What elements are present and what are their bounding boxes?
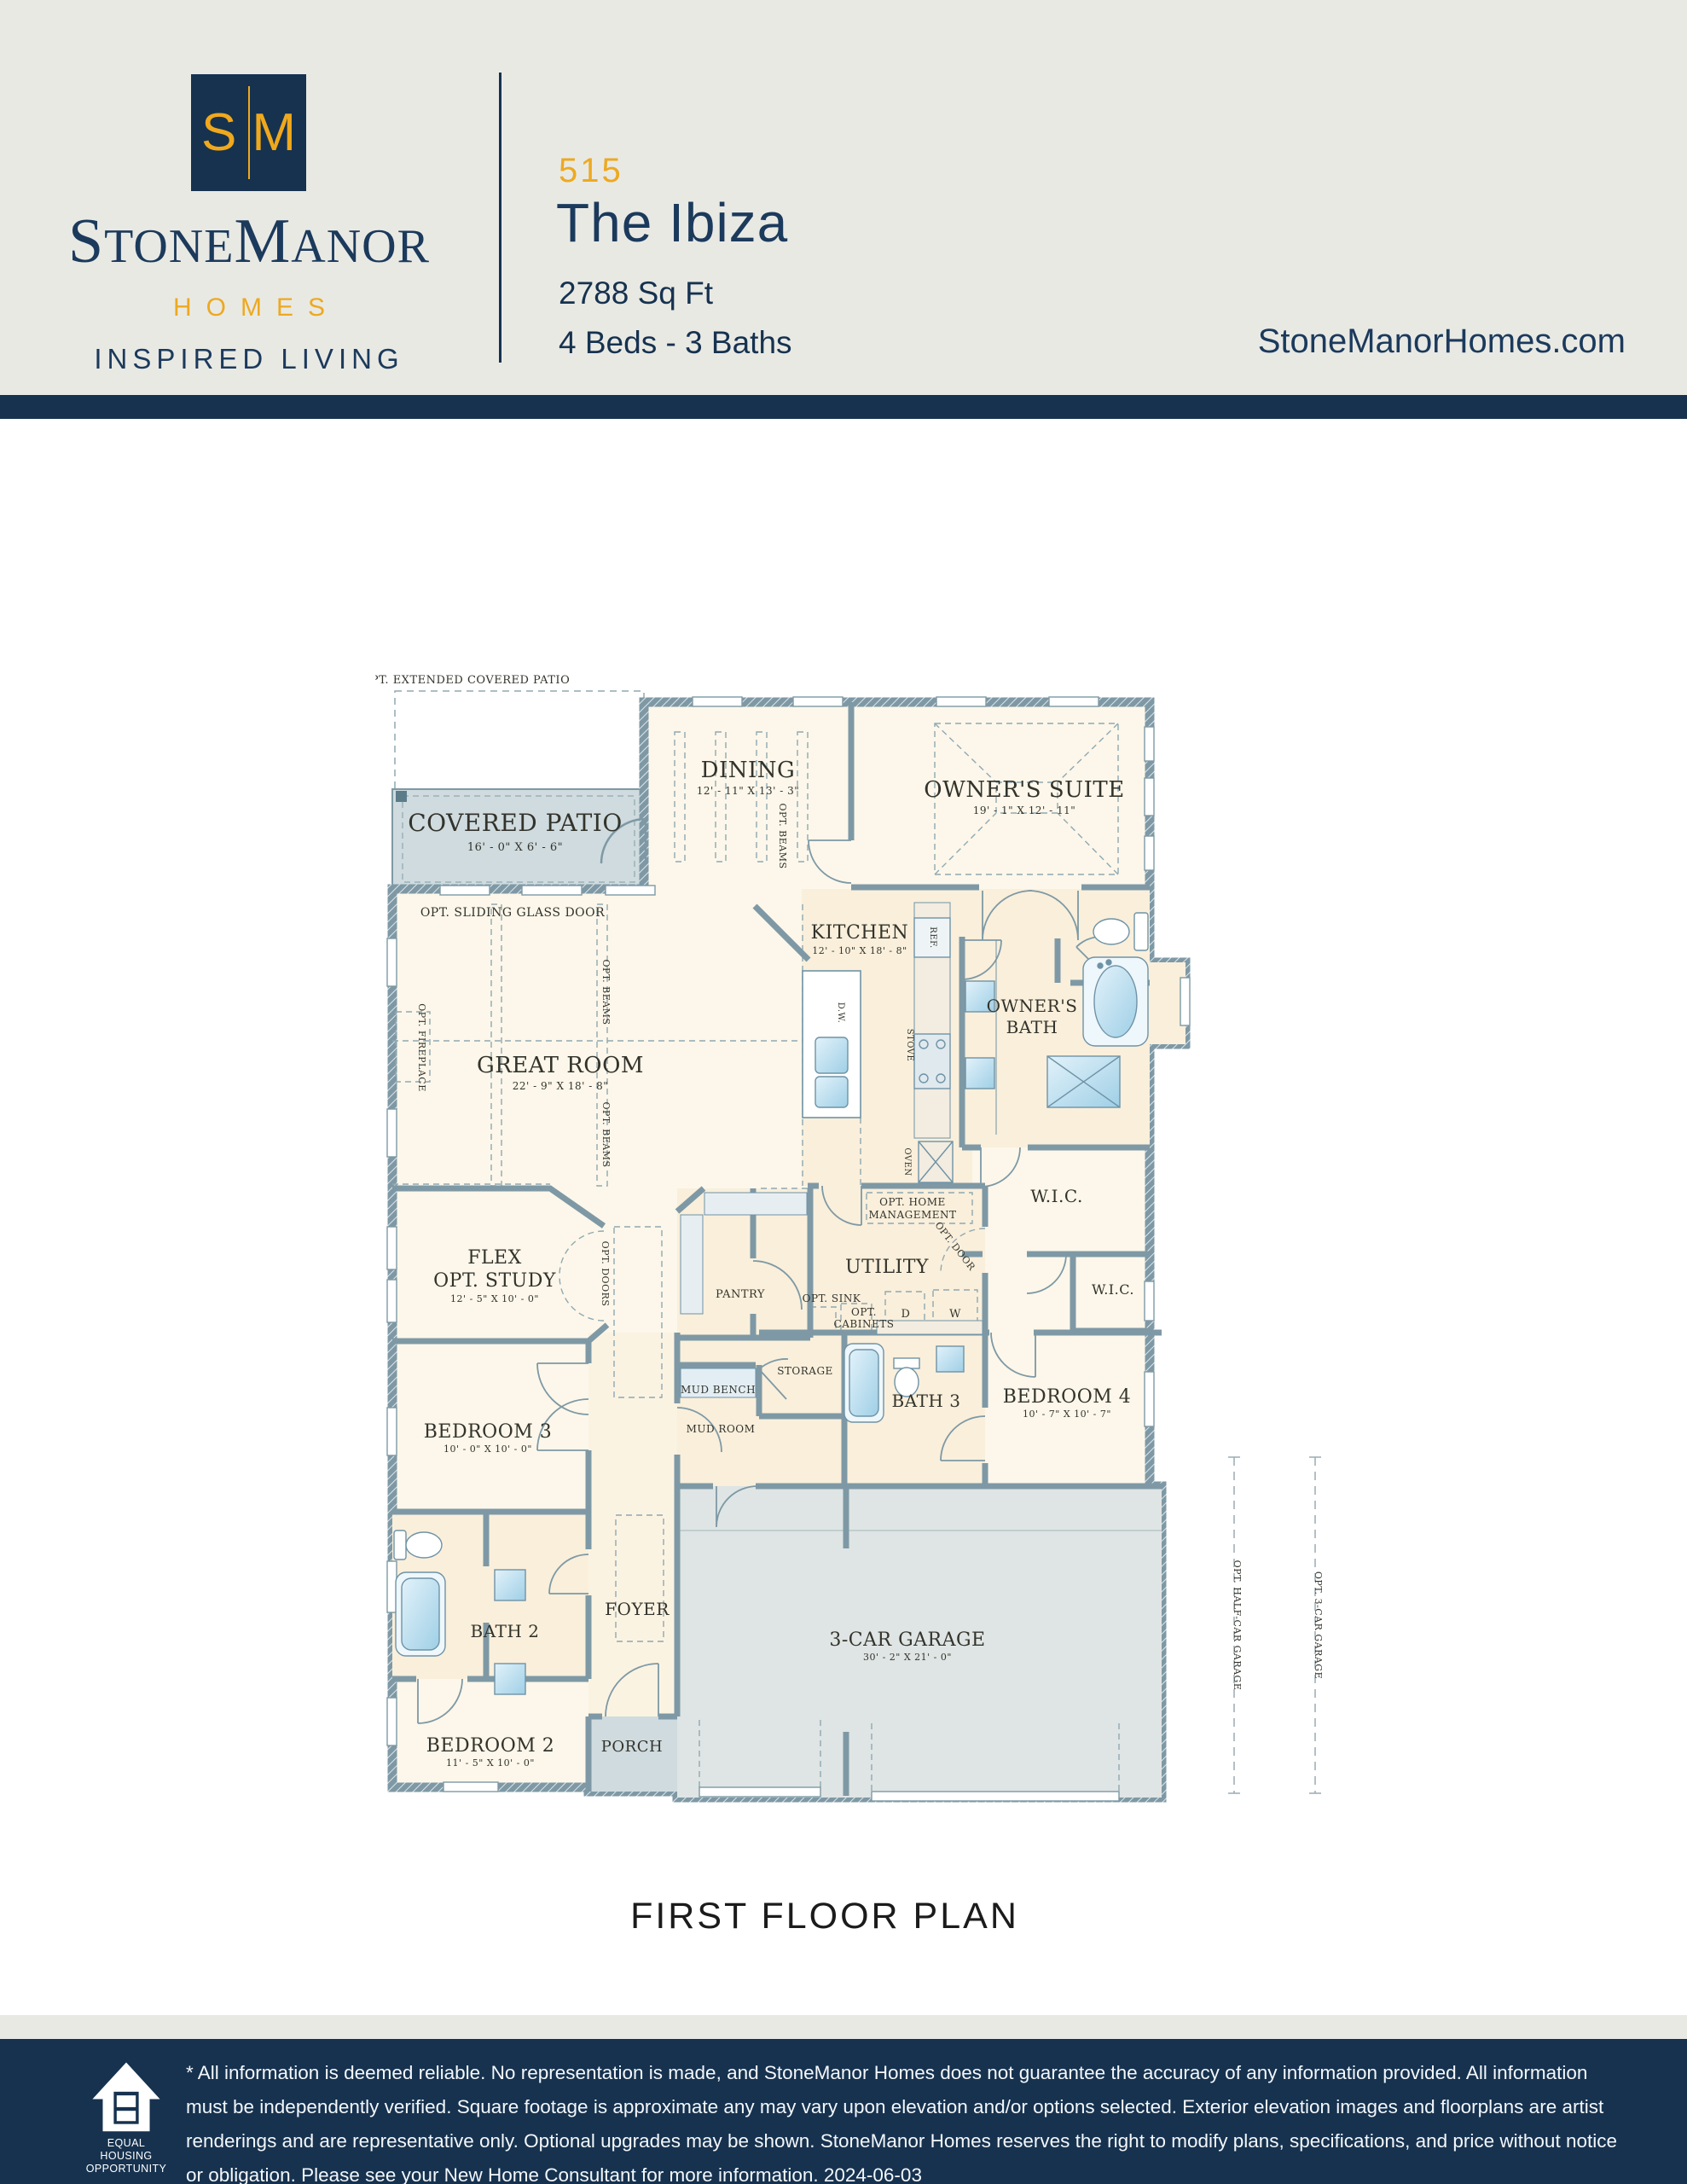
owner-shower — [1047, 1056, 1120, 1107]
room-label: UTILITY — [845, 1257, 929, 1278]
room-label: BATH 3 — [892, 1391, 961, 1411]
disclaimer-text: * All information is deemed reliable. No… — [186, 2056, 1634, 2184]
room-label: KITCHEN12' - 10" X 18' - 8" — [811, 922, 909, 956]
room-label: OPT. SLIDING GLASS DOOR — [420, 906, 605, 920]
room-label: FLEX — [467, 1247, 522, 1269]
footer: EQUAL HOUSING OPPORTUNITY * All informat… — [0, 2039, 1687, 2184]
room-label: OPT. DOORS — [600, 1241, 611, 1307]
website-url: StoneManorHomes.com — [1258, 322, 1626, 361]
room-label: OPT. SINK — [803, 1292, 861, 1304]
room-label: DINING12' - 11" X 13' - 3" — [697, 758, 800, 797]
logo-monogram: S M — [191, 74, 306, 191]
room-label: PORCH — [601, 1738, 663, 1756]
room-label: FOYER — [605, 1599, 670, 1619]
plan-caption: FIRST FLOOR PLAN — [0, 1896, 1649, 1937]
kitchen-island — [803, 971, 861, 1118]
room-label: W — [949, 1308, 961, 1321]
room-label: OWNER'S — [987, 996, 1078, 1016]
room-label: OPT. FIREPLACE — [416, 1003, 427, 1092]
brand-name: STONEMANOR — [36, 212, 462, 288]
room-label: BATH 2 — [471, 1621, 540, 1641]
stonemanor-logo: S M — [191, 74, 306, 191]
room-label: BATH — [1006, 1017, 1058, 1037]
brand-block: STONEMANOR HOMES INSPIRED LIVING — [36, 212, 462, 375]
room-label: MANAGEMENT — [868, 1209, 956, 1221]
room-label: D.W. — [836, 1002, 845, 1024]
plan-number: 515 — [559, 152, 623, 190]
logo-letter-m: M — [252, 102, 296, 163]
room-label: CABINETS — [834, 1318, 895, 1330]
room-label: OVEN — [902, 1147, 912, 1176]
room-label: D — [901, 1308, 911, 1321]
brand-tagline: INSPIRED LIVING — [36, 343, 462, 375]
header-rule-bar — [0, 395, 1687, 419]
flyer-page: S M STONEMANOR HOMES INSPIRED LIVING 515… — [0, 0, 1687, 2184]
room-label: OPT. BEAMS — [600, 960, 612, 1025]
eho-text-line2: OPPORTUNITY — [84, 2163, 169, 2175]
plan-sqft: 2788 Sq Ft — [559, 276, 713, 311]
equal-housing-logo: EQUAL HOUSING OPPORTUNITY — [84, 2059, 169, 2175]
room-label: W.I.C. — [1030, 1186, 1083, 1206]
footer-gray-strip — [0, 2015, 1687, 2039]
room-label: OPT. HOME — [879, 1196, 946, 1208]
owner-tub — [1083, 957, 1148, 1046]
room-label: OPT. BEAMS — [777, 804, 788, 869]
eho-text-line1: EQUAL HOUSING — [84, 2137, 169, 2163]
logo-letter-s: S — [201, 102, 236, 163]
room-label: OPT. — [851, 1306, 877, 1318]
plan-beds-baths: 4 Beds - 3 Baths — [559, 325, 792, 361]
room-label: STOVE — [905, 1029, 914, 1062]
room-label: MUD ROOM — [687, 1423, 756, 1435]
room-label: OPT. STUDY12' - 5" X 10' - 0" — [433, 1270, 556, 1304]
room-label: OPT. 3-CAR GARAGE — [1313, 1571, 1324, 1679]
header: S M STONEMANOR HOMES INSPIRED LIVING 515… — [0, 0, 1687, 395]
room-label: MUD BENCH — [681, 1384, 756, 1396]
room-label: REF. — [928, 926, 937, 948]
room-label: STORAGE — [777, 1365, 833, 1377]
brand-homes: HOMES — [36, 293, 462, 322]
room-label: OPT. BEAMS — [600, 1102, 612, 1168]
page-title: The Ibiza — [556, 191, 788, 254]
room-label: OPT. HALF-CAR GARAGE — [1232, 1560, 1243, 1691]
header-divider — [499, 73, 501, 363]
room-label: W.I.C. — [1092, 1281, 1134, 1298]
covered-patio — [392, 789, 644, 889]
equal-housing-house-icon — [90, 2059, 163, 2133]
room-label: PANTRY — [716, 1288, 765, 1301]
room-label: OPT. EXTENDED COVERED PATIO — [375, 674, 570, 687]
floor-plan: OPT. EXTENDED COVERED PATIOCOVERED PATIO… — [375, 665, 1348, 1843]
opt-extended-patio — [395, 691, 644, 789]
